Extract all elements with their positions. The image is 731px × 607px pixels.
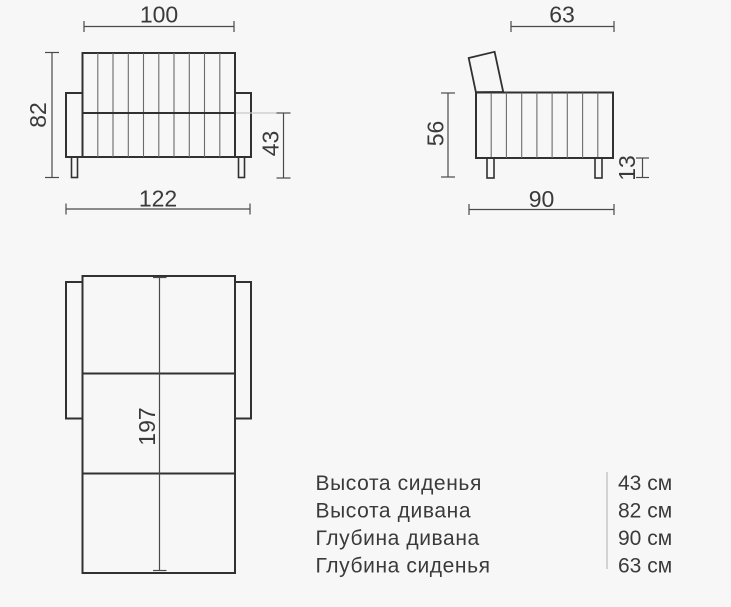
svg-text:122: 122 [139,186,177,212]
svg-text:Глубина дивана: Глубина дивана [316,527,480,550]
svg-text:63 см: 63 см [618,555,672,578]
svg-text:100: 100 [140,2,178,28]
svg-text:13: 13 [614,155,640,181]
svg-text:Высота дивана: Высота дивана [316,500,472,523]
svg-text:82: 82 [25,102,51,128]
svg-text:Высота сиденья: Высота сиденья [316,472,482,495]
svg-text:43 см: 43 см [618,472,672,495]
svg-text:82 см: 82 см [618,500,672,523]
svg-text:63: 63 [549,2,575,28]
svg-text:90: 90 [529,186,555,212]
svg-text:90 см: 90 см [618,527,672,550]
svg-text:197: 197 [134,407,160,445]
svg-text:56: 56 [423,121,449,147]
svg-text:Глубина сиденья: Глубина сиденья [316,555,491,578]
svg-text:43: 43 [258,131,284,157]
